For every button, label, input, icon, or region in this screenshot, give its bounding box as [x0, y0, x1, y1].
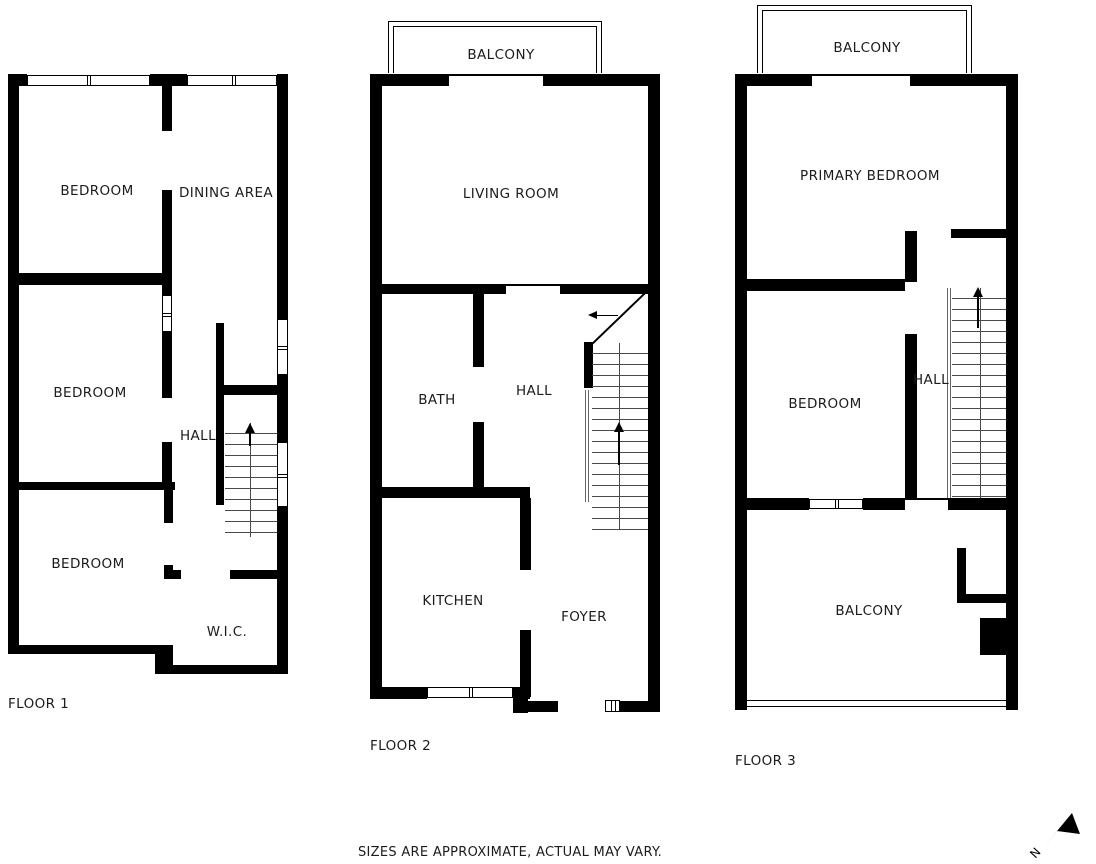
room-label-primary-bedroom: PRIMARY BEDROOM	[800, 168, 940, 184]
stair-railing	[947, 288, 951, 498]
window	[27, 75, 150, 86]
balcony-railing	[747, 706, 1006, 707]
wall	[162, 86, 172, 131]
staircase	[592, 343, 648, 530]
wall	[735, 74, 747, 710]
wall	[216, 323, 224, 505]
wall	[560, 284, 648, 294]
window	[809, 499, 863, 509]
room-label-living-room: LIVING ROOM	[463, 186, 559, 202]
north-arrow-icon: N	[1022, 786, 1092, 864]
stairs-break-line	[591, 290, 648, 344]
wall	[735, 498, 809, 510]
wall	[162, 332, 172, 398]
floor-label: FLOOR 3	[735, 753, 796, 769]
floor-label: FLOOR 2	[370, 738, 431, 754]
wall	[164, 570, 181, 579]
floor-label: FLOOR 1	[8, 696, 69, 712]
staircase	[952, 288, 1006, 498]
wall	[8, 74, 19, 654]
wall	[520, 498, 531, 570]
room-label-bedroom: BEDROOM	[788, 396, 861, 412]
wall	[648, 74, 660, 712]
wall	[164, 490, 173, 523]
wall	[8, 273, 172, 285]
wall	[905, 334, 917, 498]
wall	[948, 498, 1006, 510]
door-threshold	[449, 74, 543, 76]
room-label-bedroom: BEDROOM	[60, 183, 133, 199]
room-label-bedroom: BEDROOM	[51, 556, 124, 572]
stair-railing	[585, 390, 589, 502]
stairs-up-arrow-icon	[614, 422, 624, 432]
room-label-balcony: BALCONY	[467, 47, 534, 63]
room-label-hall: HALL	[913, 372, 949, 388]
wall	[162, 190, 172, 274]
disclaimer-text: SIZES ARE APPROXIMATE, ACTUAL MAY VARY.	[358, 845, 662, 860]
floorplan-canvas: BEDROOM DINING AREA BEDROOM HALL BEDROOM…	[0, 0, 1096, 864]
wall	[8, 482, 175, 490]
window	[187, 75, 277, 86]
wall	[1006, 74, 1018, 710]
room-label-bedroom: BEDROOM	[53, 385, 126, 401]
wall	[957, 594, 1006, 603]
wall	[370, 284, 506, 294]
chimney-column	[980, 618, 1008, 655]
wall	[230, 570, 287, 579]
balcony-railing	[747, 700, 1006, 701]
room-label-balcony: BALCONY	[835, 603, 902, 619]
window	[277, 319, 288, 375]
wall	[951, 229, 1008, 238]
room-label-dining-area: DINING AREA	[179, 185, 273, 201]
wall	[473, 290, 484, 367]
wall	[277, 507, 288, 674]
wall	[543, 74, 660, 86]
wall	[910, 74, 1018, 86]
room-label-balcony: BALCONY	[833, 40, 900, 56]
wall	[863, 498, 905, 510]
window	[277, 442, 288, 507]
wall	[165, 665, 287, 674]
door-threshold	[506, 284, 560, 286]
room-label-wic: W.I.C.	[207, 624, 247, 640]
wall	[370, 74, 382, 699]
wall	[162, 285, 172, 295]
window	[162, 295, 172, 332]
wall	[370, 687, 427, 699]
wall	[735, 279, 905, 291]
wall	[150, 74, 187, 86]
north-label: N	[1027, 845, 1043, 861]
entry-sidelight	[605, 700, 620, 712]
stairs-up-arrow-icon	[973, 287, 983, 297]
window	[427, 687, 513, 698]
room-label-hall: HALL	[180, 428, 216, 444]
wall	[620, 701, 648, 712]
wall	[520, 701, 558, 712]
wall	[277, 74, 288, 319]
room-label-bath: BATH	[418, 392, 455, 408]
wall	[8, 74, 27, 86]
staircase	[225, 423, 277, 537]
room-label-foyer: FOYER	[561, 609, 607, 625]
wall	[370, 487, 530, 498]
wall	[224, 385, 285, 395]
room-label-hall: HALL	[516, 383, 552, 399]
wall	[905, 231, 917, 282]
wall	[8, 645, 165, 654]
stairs-down-arrow-icon	[588, 311, 597, 319]
door-threshold	[905, 498, 948, 500]
room-label-kitchen: KITCHEN	[422, 593, 483, 609]
stairs-up-arrow-icon	[245, 423, 255, 433]
door-threshold	[812, 74, 910, 76]
wall	[473, 422, 484, 497]
